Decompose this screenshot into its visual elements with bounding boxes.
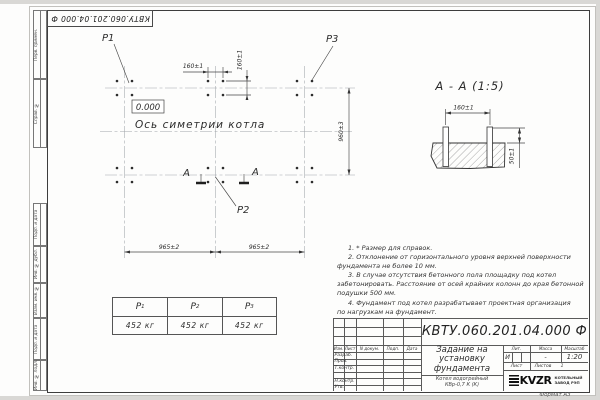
kvzr-logo-icon xyxy=(509,375,519,386)
symmetry-axis-label: Ось симетрии котла xyxy=(135,119,265,131)
point-label-p3: P3 xyxy=(326,34,338,45)
sheets-label: Листов xyxy=(530,362,556,370)
note-line: 4. Фундамент под котел разрабатывает про… xyxy=(337,299,591,308)
note-line: подушки 500 мм. xyxy=(337,289,591,298)
dim-row-span: 960±3 xyxy=(338,121,345,141)
mass-value: - xyxy=(530,352,561,362)
col-list: Лист xyxy=(344,345,356,352)
elevation-value: 0.000 xyxy=(136,103,160,113)
note-line: 1. * Размер для справок. xyxy=(337,244,591,253)
load-table-value: 452 кг xyxy=(113,316,167,334)
sheet-label: Лист xyxy=(503,362,530,370)
load-table-value: 452 кг xyxy=(222,316,276,334)
scale-label: Масштаб xyxy=(561,345,588,352)
col-izm: Изм. xyxy=(333,345,344,352)
company-cell: KVZR КОТЕЛЬНЫЙ ЗАВОД РЭП xyxy=(503,370,588,391)
load-table-value: 452 кг xyxy=(167,316,221,334)
row-utv: Утв. xyxy=(335,385,357,392)
product-name: Котел водогрейный КВр-0,7 К (К) xyxy=(421,376,503,389)
load-table-header: P1 xyxy=(113,298,167,316)
col-date: Дата xyxy=(403,345,421,352)
mass-label: Масса xyxy=(530,345,561,352)
technical-notes: 1. * Размер для справок. 2. Отклонение о… xyxy=(337,244,591,317)
anchor-bolt-left xyxy=(443,127,449,167)
point-label-p1: P1 xyxy=(102,33,114,44)
load-table-header: P2 xyxy=(167,298,221,316)
load-table: P1 P2 P3 452 кг 452 кг 452 кг xyxy=(112,297,277,335)
format-label: Формат А3 xyxy=(520,392,590,398)
dim-bolt-vertical: 160±1 xyxy=(237,50,244,70)
col-sign: Подп. xyxy=(383,345,403,352)
drawing-title: Задание на установку фундамента xyxy=(421,346,503,374)
lit-value: И xyxy=(503,352,512,362)
note-line: 2. Отклонение от горизонтального уровня … xyxy=(337,253,591,262)
col-doc: N докум. xyxy=(356,345,383,352)
note-line: фундамента не более 10 мм. xyxy=(337,262,591,271)
dim-span-left: 965±2 xyxy=(159,244,179,251)
note-line: по нагрузкам на фундамент. xyxy=(337,308,591,317)
dim-section-bolt-spacing: 160±1 xyxy=(453,105,473,112)
anchor-bolt-right xyxy=(487,127,493,167)
kvzr-logo-text: KVZR xyxy=(520,374,552,387)
title-block: Изм. Лист N докум. Подп. Дата Разраб. Пр… xyxy=(333,318,588,391)
dim-span-right: 965±2 xyxy=(249,244,269,251)
section-letter-left: А xyxy=(182,168,190,179)
note-line: 3. В случае отсутствия бетонного пола пл… xyxy=(337,271,591,280)
note-line: забетонировать. Расстояние от осей крайн… xyxy=(337,280,591,289)
company-name: КОТЕЛЬНЫЙ ЗАВОД РЭП xyxy=(555,376,583,385)
concrete-pad-hatched xyxy=(431,143,505,169)
point-label-p2: P2 xyxy=(237,205,249,216)
sheets-value: 1 xyxy=(556,362,568,370)
title-block-doc-number: КВТУ.060.201.04.000 Ф xyxy=(421,318,588,345)
lit-label: Лит. xyxy=(503,345,530,352)
load-table-header: P3 xyxy=(222,298,276,316)
scale-value: 1:20 xyxy=(561,352,588,362)
dim-section-protrusion: 50±1 xyxy=(509,148,516,164)
dim-bolt-horizontal: 160±1 xyxy=(183,63,203,70)
drawing-sheet: Перв. примен. Справ. № Подп. и дата Инв.… xyxy=(0,0,600,400)
section-letter-right: А xyxy=(251,167,259,178)
section-title: А - А (1:5) xyxy=(434,79,504,93)
